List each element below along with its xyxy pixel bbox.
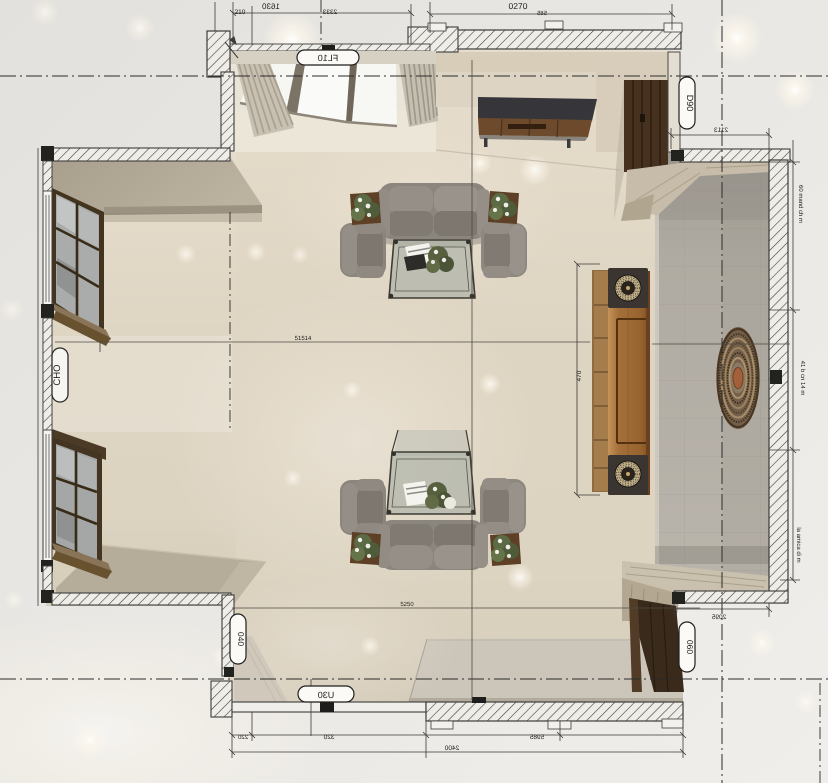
- svg-text:2400: 2400: [444, 745, 459, 752]
- svg-text:320: 320: [323, 734, 334, 741]
- svg-text:2113: 2113: [714, 127, 728, 134]
- svg-text:FL10: FL10: [318, 53, 339, 63]
- svg-text:585: 585: [536, 10, 547, 17]
- svg-text:0270: 0270: [509, 1, 528, 11]
- svg-text:2333: 2333: [322, 9, 337, 16]
- svg-text:60 mand ch m: 60 mand ch m: [797, 185, 804, 223]
- svg-text:41 b cn 14 m: 41 b cn 14 m: [799, 361, 806, 396]
- svg-text:060: 060: [685, 640, 695, 654]
- svg-text:220: 220: [237, 734, 248, 741]
- svg-text:la amica di m: la amica di m: [795, 527, 802, 562]
- svg-text:210: 210: [235, 9, 246, 16]
- svg-text:5250: 5250: [400, 601, 414, 608]
- svg-text:51514: 51514: [295, 335, 312, 342]
- svg-text:5985: 5985: [529, 734, 544, 741]
- svg-text:D90: D90: [685, 95, 695, 112]
- svg-text:2095: 2095: [711, 614, 726, 621]
- svg-text:470: 470: [576, 370, 583, 381]
- svg-text:CHO: CHO: [52, 364, 63, 385]
- svg-text:1630: 1630: [262, 2, 280, 11]
- svg-text:040: 040: [236, 632, 246, 646]
- svg-text:U30: U30: [318, 690, 335, 700]
